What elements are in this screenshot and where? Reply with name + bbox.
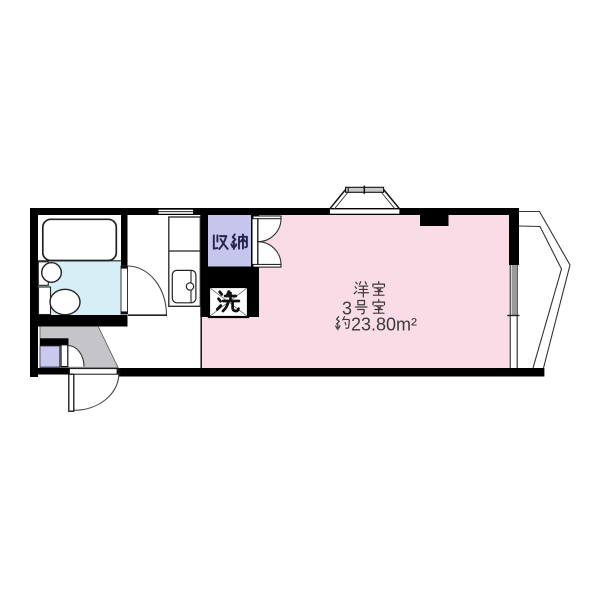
svg-text:23.80m²: 23.80m² <box>351 315 417 335</box>
